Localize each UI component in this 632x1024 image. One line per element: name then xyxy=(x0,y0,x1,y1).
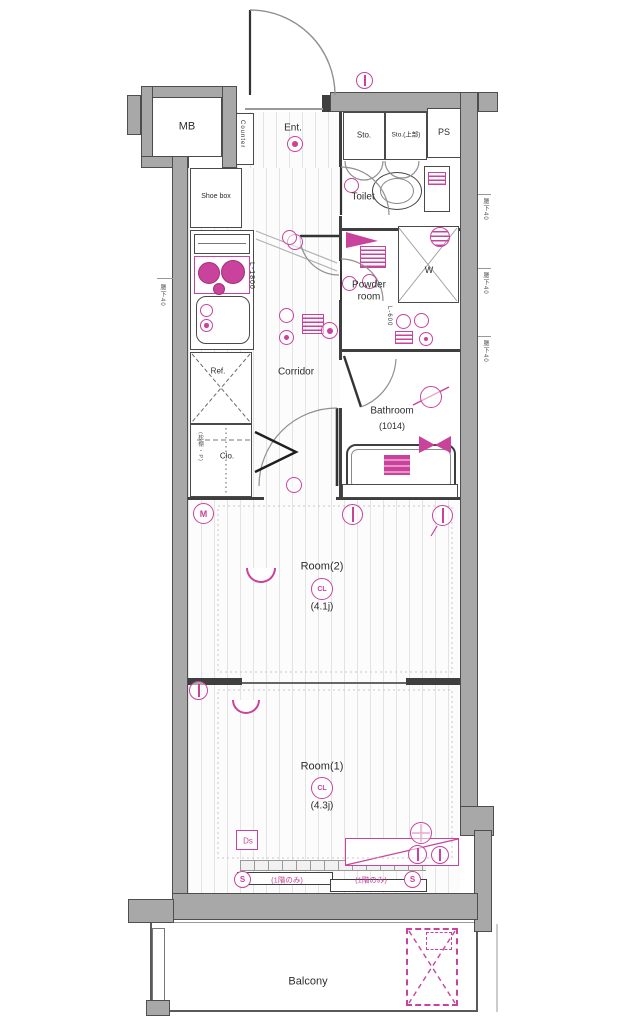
corridor-light-icon xyxy=(282,230,297,245)
powder-room-label: Powder room xyxy=(341,280,397,303)
outlet-symbol xyxy=(432,505,453,526)
balcony-partition xyxy=(152,928,165,1004)
divider-stub xyxy=(406,678,460,685)
room2-size-label: (4.1j) xyxy=(311,601,334,613)
balcony-label: Balcony xyxy=(288,976,327,989)
shoe-box-label: Shoe box xyxy=(201,193,231,201)
thermostat-icon xyxy=(321,322,338,339)
window-height-note: 腰下40 xyxy=(481,272,490,295)
first-floor-only-note: (1階のみ) xyxy=(271,875,303,886)
refrigerator-label: Ref. xyxy=(211,366,226,375)
tv-outlet-icon xyxy=(410,822,432,844)
partition xyxy=(339,349,460,352)
faucet-icon xyxy=(200,319,213,332)
window-height-note: 腰下40 xyxy=(481,340,490,363)
meter-symbol: M xyxy=(193,503,214,524)
partition xyxy=(339,300,342,351)
vanity-length-label: L-600 xyxy=(386,306,392,326)
wall-left xyxy=(172,156,188,920)
ds-box: Ds xyxy=(236,830,258,850)
room1-label: Room(1) xyxy=(301,761,344,774)
partition xyxy=(339,112,342,167)
dimension-tick xyxy=(157,278,173,279)
refrigerator-space xyxy=(190,352,252,424)
wall-mb-right xyxy=(222,86,237,168)
washlet-icon xyxy=(414,313,429,328)
pipe-space-label: PS xyxy=(438,127,450,137)
wall-bottom xyxy=(172,893,478,920)
partition xyxy=(339,231,342,261)
doorbell-icon xyxy=(356,72,373,89)
closet-light-symbol: CL xyxy=(311,777,333,799)
ceiling-light-icon xyxy=(287,136,303,152)
shutter-symbol: S xyxy=(234,871,251,888)
bath-vent-fan-icon xyxy=(420,386,442,408)
switch-icon xyxy=(279,308,294,323)
outlet-symbol xyxy=(431,846,449,864)
counter-length-label: L-1800 xyxy=(248,262,255,290)
toilet-label: Toilet xyxy=(351,191,374,203)
washlet-control-icon xyxy=(395,331,413,344)
range-hood xyxy=(194,234,250,254)
wall-corner xyxy=(478,92,498,112)
window-height-note: 腰下40 xyxy=(481,198,490,221)
ds-label: Ds xyxy=(243,837,253,846)
faucet-icon xyxy=(200,304,213,317)
range-hood-line xyxy=(198,243,246,244)
storage-upper-label: Sto.(上部) xyxy=(388,131,424,138)
shutter-symbol: S xyxy=(404,871,421,888)
washlet-icon xyxy=(396,314,411,329)
bath-control-panel xyxy=(384,455,410,475)
wall-balcony-foot xyxy=(146,1000,170,1016)
washlet-control xyxy=(428,172,446,185)
entrance-door-arc xyxy=(250,10,335,95)
stove-burner xyxy=(213,283,225,295)
evacuation-hatch-lid xyxy=(426,932,452,950)
toilet-bowl-inner xyxy=(380,178,414,204)
corridor-light-icon xyxy=(286,477,302,493)
stove-burner xyxy=(221,260,245,284)
outlet-symbol xyxy=(342,504,363,525)
entrance-threshold xyxy=(245,108,323,110)
floor-plan: Ds xyxy=(0,0,632,1024)
wall xyxy=(127,95,141,135)
entrance-label: Ent. xyxy=(284,122,302,134)
room2-label: Room(2) xyxy=(301,561,344,574)
vanity-mirror xyxy=(360,246,386,268)
dimension-tick xyxy=(478,336,491,337)
corridor-label: Corridor xyxy=(278,366,314,378)
dimension-tick xyxy=(478,194,491,195)
window-height-note: 腰下40 xyxy=(158,284,167,307)
washer-outlet-icon xyxy=(430,227,450,247)
closet-light-symbol: CL xyxy=(311,578,333,600)
closet-shelf-note: (枕棚・P) xyxy=(196,432,204,462)
storage-label: Sto. xyxy=(357,130,371,139)
mb-label: MB xyxy=(179,121,196,134)
door-jamb xyxy=(322,95,330,112)
stove-burner xyxy=(198,262,220,284)
partition xyxy=(188,497,264,500)
outlet-symbol xyxy=(189,681,208,700)
hanging-shelf xyxy=(342,484,458,498)
wall-ext-left xyxy=(128,899,174,923)
neighbor-line xyxy=(496,924,498,1012)
outlet-symbol xyxy=(408,845,427,864)
dimension-tick xyxy=(478,268,491,269)
room1-size-label: (4.3j) xyxy=(311,800,334,812)
closet-label: Clo. xyxy=(220,451,234,460)
wall-right xyxy=(460,92,478,818)
bathroom-size-label: (1014) xyxy=(379,421,405,431)
washlet-icon xyxy=(419,332,433,346)
bathroom-label: Bathroom xyxy=(370,405,413,417)
washer-label: W xyxy=(425,265,434,275)
partition xyxy=(339,352,342,360)
switch-icon xyxy=(279,330,294,345)
first-floor-only-note: (1階のみ) xyxy=(355,875,387,886)
counter-label: Counter xyxy=(239,120,245,148)
